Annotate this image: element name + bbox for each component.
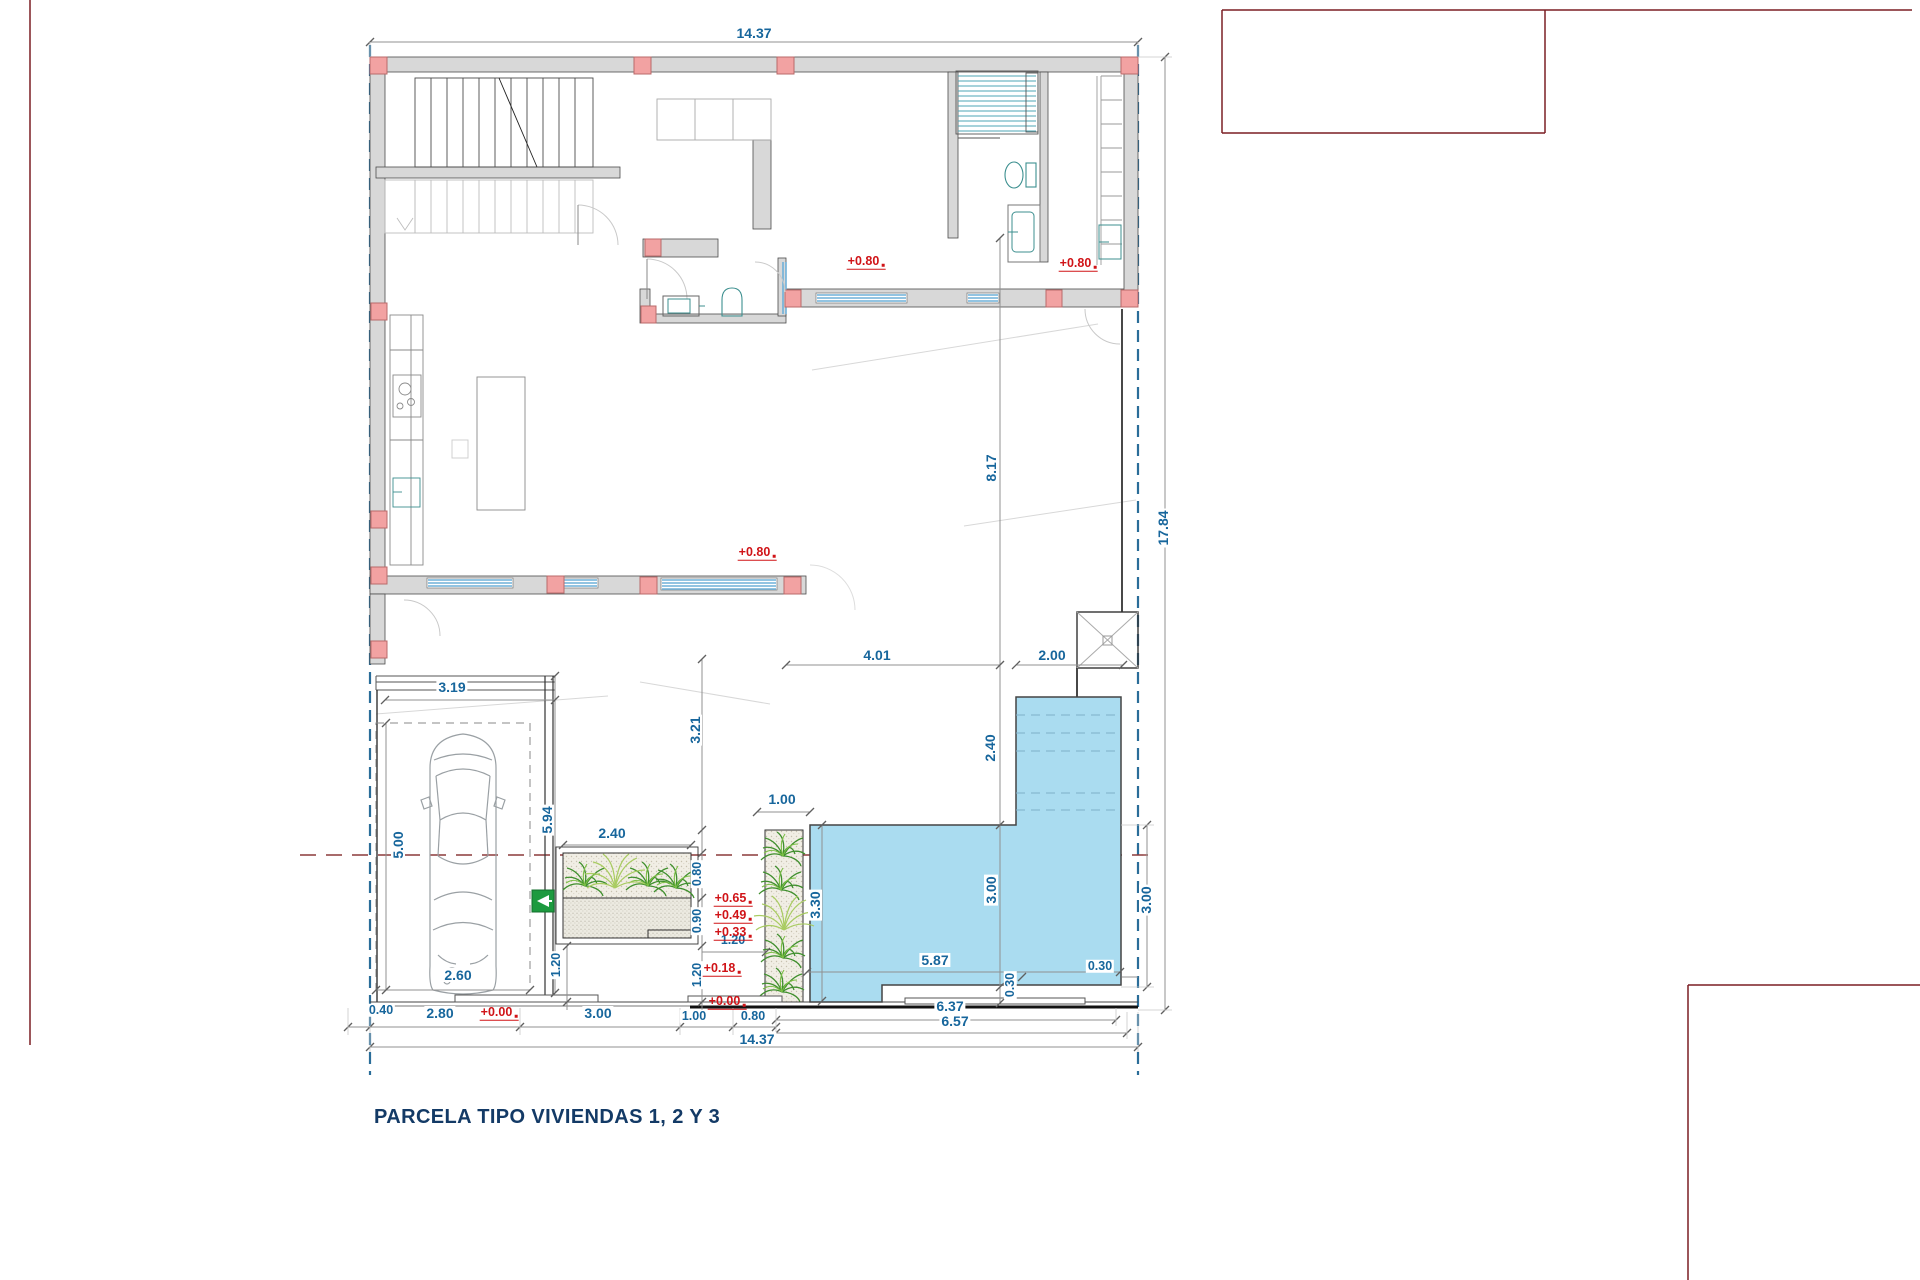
dim-right-height: 17.84 — [1156, 508, 1170, 547]
dim-b3: 1.00 — [680, 1010, 708, 1023]
sink-icon — [663, 296, 705, 316]
grade-lines — [376, 324, 1136, 714]
walls — [370, 57, 1138, 664]
planters — [556, 830, 814, 1002]
car-top-view-icon — [421, 734, 505, 994]
level-plus080-a: +0.80 — [847, 255, 886, 270]
dim-pool-off-bottom: 0.30 — [1004, 971, 1017, 999]
dim-planter-h2: 0.90 — [691, 907, 704, 935]
dressing-room — [1097, 76, 1122, 265]
dim-terrace-len: 8.17 — [984, 452, 998, 483]
toilet-icon — [1005, 162, 1036, 188]
dim-b6: 6.57 — [939, 1014, 970, 1028]
dim-pool-arm: 2.40 — [983, 732, 997, 763]
staircase — [385, 78, 593, 233]
dim-patio-a: 4.01 — [861, 648, 892, 662]
dim-pool-right: 3.00 — [1139, 884, 1153, 915]
dim-b4: 0.80 — [739, 1010, 767, 1023]
dim-pool-off-right: 0.30 — [1086, 960, 1114, 973]
powder-room — [663, 288, 742, 316]
bathroom — [956, 71, 1040, 262]
dim-b5: 6.37 — [934, 999, 965, 1013]
sink-icon — [1099, 225, 1121, 259]
level-plus000-a: +0.00 — [480, 1006, 519, 1021]
toilet-icon — [722, 288, 742, 316]
kitchen-island — [477, 377, 525, 510]
dim-pool-side: 3.30 — [808, 889, 822, 920]
vanity-sink-icon — [1008, 205, 1040, 262]
dim-garage-len: 5.94 — [540, 804, 554, 835]
dim-walk-a: 1.20 — [691, 961, 704, 989]
level-plus049: +0.49 — [714, 909, 753, 924]
dim-pool-h: 3.00 — [984, 874, 998, 905]
level-plus080-c: +0.80 — [738, 546, 777, 561]
dim-bottom-width: 14.37 — [737, 1032, 776, 1046]
kitchen — [390, 315, 525, 565]
shower-icon — [956, 71, 1038, 138]
floor-plan-sheet: 14.37 17.84 8.17 4.01 2.00 2.40 3.00 0.3… — [0, 0, 1920, 1280]
skylight-x-marker — [1077, 612, 1138, 668]
stove-icon — [393, 375, 421, 417]
dim-setback: 0.40 — [367, 1004, 395, 1017]
dim-palm-w: 1.00 — [766, 792, 797, 806]
level-plus065: +0.65 — [714, 892, 753, 907]
dim-b2: 3.00 — [582, 1006, 613, 1020]
pool — [810, 697, 1121, 1002]
sink-icon — [393, 478, 420, 507]
door-arcs — [404, 205, 1120, 636]
gravel-bed — [563, 898, 691, 938]
dim-walk-c: 1.20 — [550, 951, 563, 979]
closet — [657, 99, 771, 140]
dim-planter-w: 2.40 — [596, 826, 627, 840]
dim-court-h: 3.21 — [688, 714, 702, 745]
dim-pool-w: 5.87 — [919, 953, 950, 967]
dim-park-len: 5.00 — [391, 829, 405, 860]
dim-garage-w: 3.19 — [436, 680, 467, 694]
dim-park-w: 2.60 — [442, 968, 473, 982]
sheet-border-lines — [30, 0, 1920, 1280]
ev-charger-icon — [532, 890, 554, 912]
level-plus000-b: +0.00 — [708, 995, 747, 1010]
level-plus033: +0.33 — [714, 926, 753, 941]
windows — [427, 262, 999, 590]
dim-top-width: 14.37 — [734, 26, 773, 40]
level-plus080-b: +0.80 — [1059, 257, 1098, 272]
dim-planter-h1: 0.80 — [691, 860, 704, 888]
level-plus018: +0.18 — [703, 962, 742, 977]
dim-patio-b: 2.00 — [1036, 648, 1067, 662]
plan-linework — [0, 0, 1920, 1280]
dim-b1: 2.80 — [424, 1006, 455, 1020]
plan-title: PARCELA TIPO VIVIENDAS 1, 2 Y 3 — [374, 1106, 720, 1129]
